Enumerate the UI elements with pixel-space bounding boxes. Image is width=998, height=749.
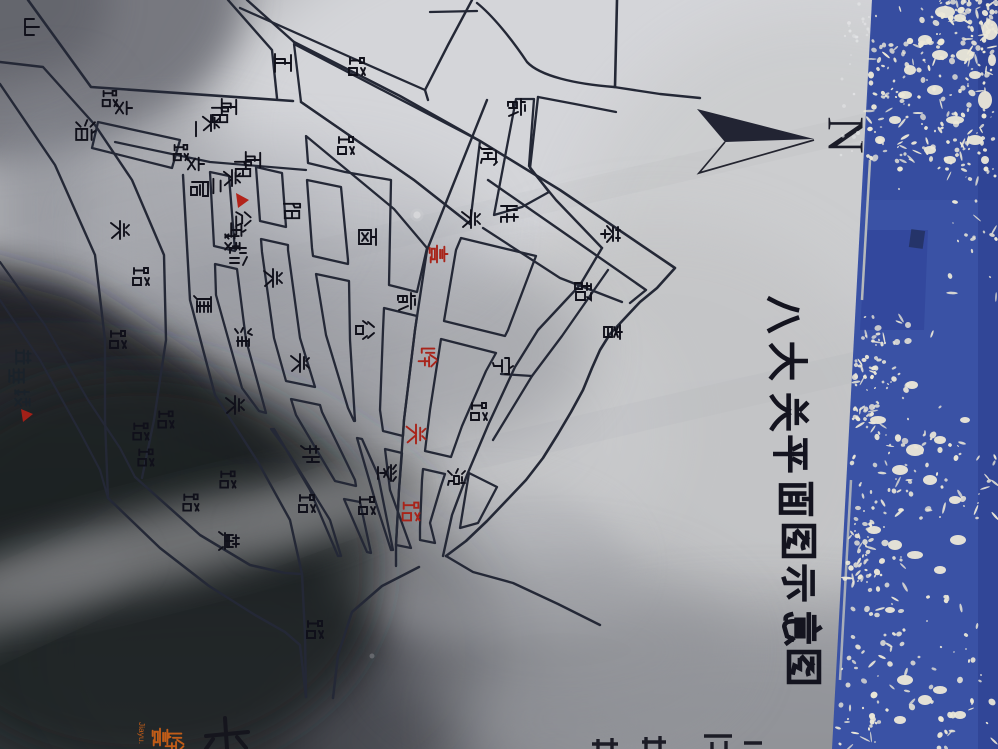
svg-text:Jiayu.: Jiayu. [137,722,147,744]
